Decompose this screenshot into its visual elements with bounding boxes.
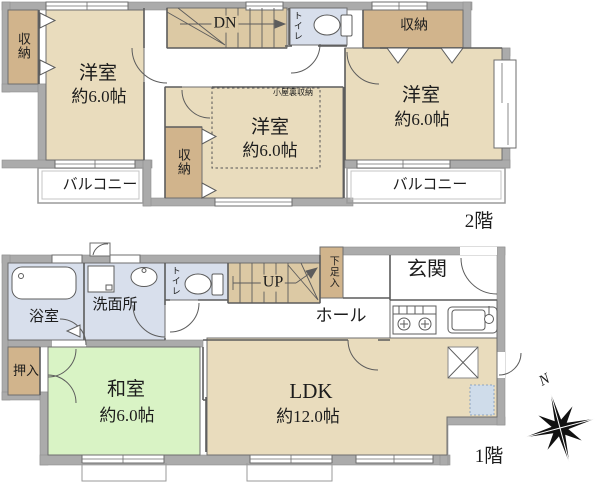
washroom-label: 洗面所 <box>92 298 137 314</box>
kitchen-sink-icon <box>448 306 497 333</box>
closet-tl-label: 収納 <box>16 32 30 60</box>
closet-tr-label: 収納 <box>400 20 428 35</box>
floor2-label: 2階 <box>465 212 494 232</box>
balcony-right-label: バルコニー <box>393 178 468 194</box>
bedroom-left-size: 約6.0帖 <box>71 88 126 106</box>
toilet-icon-1f <box>185 274 223 295</box>
hall-label: ホール <box>316 307 367 325</box>
bath-label: 浴室 <box>29 310 59 326</box>
toilet-2f-label: トイレ <box>292 11 301 41</box>
stove-icon <box>393 306 436 334</box>
toilet-icon-2f <box>314 15 352 36</box>
attic-storage-label: 小屋裏収納 <box>273 89 313 97</box>
stairs-down-label: DN <box>211 16 238 33</box>
floor-plan: 収納 洋室 約6.0帖 DN トイレ 収納 洋室 約6.0帖 小屋裏収納 洋室 … <box>0 0 600 483</box>
bedroom-left-area <box>46 10 144 160</box>
washer-pan-icon <box>88 266 114 292</box>
entrance-label: 玄関 <box>407 260 447 281</box>
under-floor-storage <box>470 385 494 415</box>
japanese-room-area <box>48 347 200 455</box>
shoe-cabinet-label: 下足入 <box>327 256 338 289</box>
oshiire-label: 押入 <box>13 364 39 378</box>
bedroom-left-name: 洋室 <box>79 64 117 84</box>
stairs-up-label: UP <box>261 275 285 292</box>
ldk-name: LDK <box>289 380 332 402</box>
bedroom-right-name: 洋室 <box>402 86 440 106</box>
floor1-label: 1階 <box>475 447 504 467</box>
floor-hatch-icon <box>448 347 478 378</box>
closet-center-label: 収納 <box>176 148 190 176</box>
japanese-room-name: 和室 <box>107 380 145 400</box>
balcony-left-label: バルコニー <box>63 178 138 194</box>
bedroom-center-name: 洋室 <box>251 118 289 138</box>
bedroom-center-size: 約6.0帖 <box>242 142 297 160</box>
bathtub-icon <box>12 267 76 299</box>
ldk-size: 約12.0帖 <box>276 408 340 426</box>
sink-icon <box>131 268 157 287</box>
japanese-room-size: 約6.0帖 <box>99 407 154 425</box>
bedroom-right-size: 約6.0帖 <box>394 111 449 129</box>
toilet-1f-label: トイレ <box>170 266 179 296</box>
